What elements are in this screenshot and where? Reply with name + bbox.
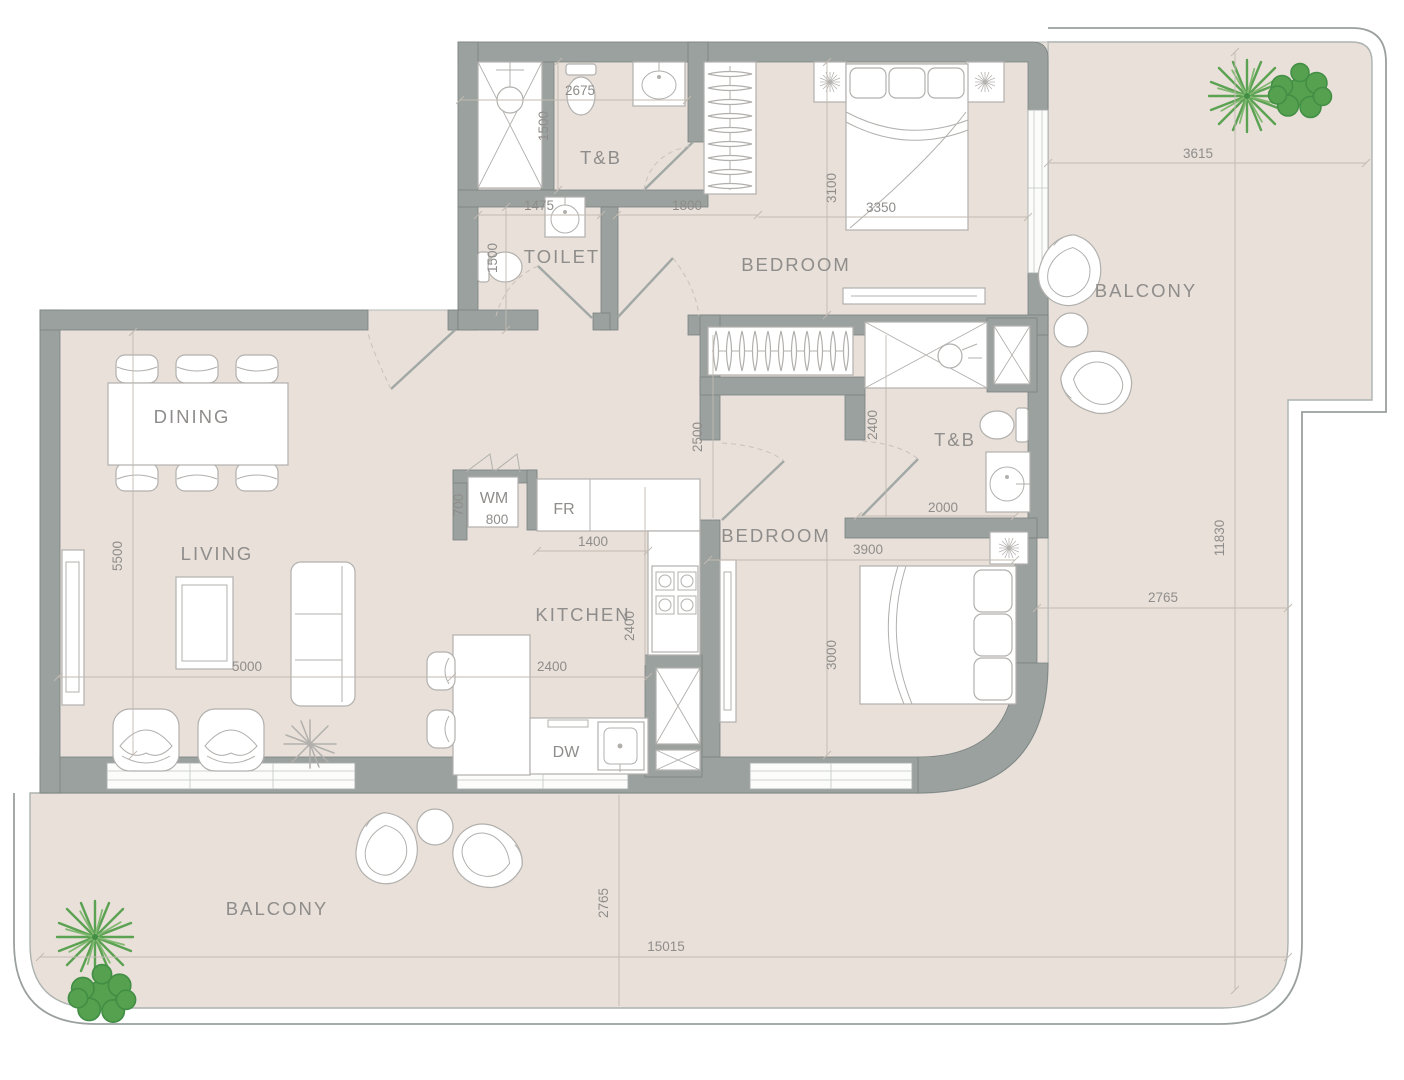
dim-3100: 3100 <box>824 173 839 203</box>
sink-icon <box>633 62 685 106</box>
dim-1800: 1800 <box>672 198 702 213</box>
bed <box>860 566 1016 704</box>
dim-15015: 15015 <box>647 939 685 954</box>
corridor-wardrobe <box>708 327 853 375</box>
dim-3615: 3615 <box>1183 146 1213 161</box>
dim-3900: 3900 <box>853 542 883 557</box>
coffee-table <box>176 577 233 669</box>
dim-2400-kitchen-h: 2400 <box>537 659 567 674</box>
wardrobe <box>704 62 756 194</box>
balcony-table <box>1054 313 1088 347</box>
dim-1500-toilet: 1500 <box>485 243 500 273</box>
bedroom1-window <box>1028 110 1048 273</box>
nightstand <box>966 62 1004 102</box>
room-label-bedroom1: BEDROOM <box>741 254 851 275</box>
floor-plan-drawing: DINING LIVING KITCHEN BEDROOM BEDROOM TO… <box>0 0 1404 1080</box>
dim-800: 800 <box>486 512 509 527</box>
room-label-kitchen: KITCHEN <box>535 604 630 625</box>
stove-icon <box>652 566 698 652</box>
dim-5500: 5500 <box>110 541 125 571</box>
floor-plan: DINING LIVING KITCHEN BEDROOM BEDROOM TO… <box>0 0 1404 1080</box>
toilet-icon <box>980 408 1028 442</box>
dim-2400-kitchen-v: 2400 <box>622 611 637 641</box>
shaft-icon <box>994 326 1030 384</box>
bench <box>843 288 985 304</box>
room-label-dining: DINING <box>154 406 231 427</box>
palm-plant-icon <box>57 901 133 973</box>
dim-2400-closet: 2400 <box>865 410 880 440</box>
dim-2500: 2500 <box>690 422 705 452</box>
shower-icon <box>865 322 987 388</box>
nightstand <box>814 62 846 102</box>
dim-1400: 1400 <box>578 534 608 549</box>
dim-1500-tb: 1500 <box>536 111 551 141</box>
dim-2765-bottom: 2765 <box>596 888 611 918</box>
balcony-table <box>417 809 453 845</box>
dim-5000: 5000 <box>232 659 262 674</box>
tv-unit <box>720 560 736 722</box>
room-label-balcony-top: BALCONY <box>1095 280 1197 301</box>
armchair <box>198 709 264 771</box>
bed <box>846 64 968 230</box>
room-label-balcony-bottom: BALCONY <box>226 898 328 919</box>
appliance-label-dw: DW <box>553 744 581 761</box>
dim-11830: 11830 <box>1212 520 1227 557</box>
room-label-tb1: T&B <box>580 147 622 168</box>
ceiling-light <box>990 532 1028 564</box>
dim-700: 700 <box>451 494 466 517</box>
room-label-toilet: TOILET <box>524 246 600 267</box>
armchair <box>113 709 179 771</box>
room-label-living: LIVING <box>181 543 254 564</box>
dim-2000: 2000 <box>928 500 958 515</box>
appliance-label-wm: WM <box>480 490 508 507</box>
sofa <box>291 562 355 706</box>
dim-3000: 3000 <box>824 640 839 670</box>
appliance-label-fr: FR <box>553 501 574 518</box>
dim-1475: 1475 <box>524 198 554 213</box>
dim-2675: 2675 <box>565 83 595 98</box>
dim-2765-right: 2765 <box>1148 590 1178 605</box>
dim-3350: 3350 <box>866 200 896 215</box>
room-label-tb2: T&B <box>934 429 976 450</box>
shaft-icon <box>656 668 700 770</box>
bedroom2-window <box>750 763 912 789</box>
room-label-bedroom2: BEDROOM <box>721 525 831 546</box>
sink-icon <box>986 452 1030 512</box>
sink-icon <box>598 722 644 772</box>
tv-console <box>62 550 84 705</box>
shower-icon <box>478 62 542 188</box>
